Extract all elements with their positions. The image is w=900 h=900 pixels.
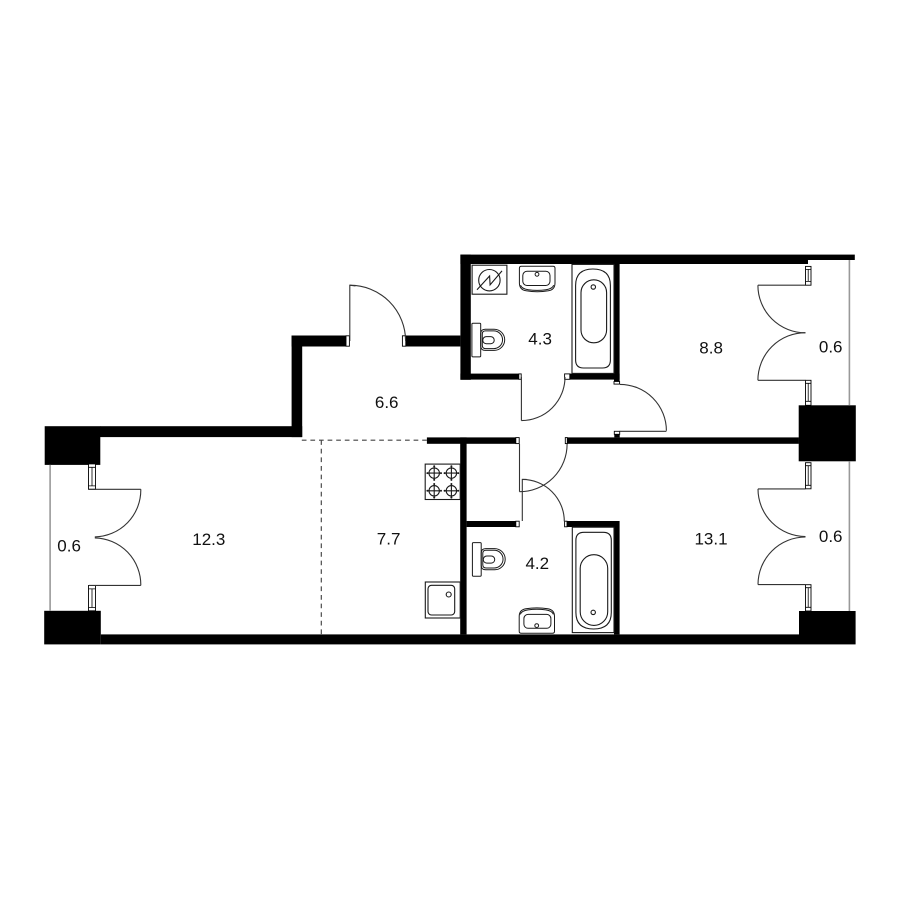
svg-text:0.6: 0.6 bbox=[819, 338, 843, 357]
svg-text:8.8: 8.8 bbox=[699, 339, 723, 358]
svg-text:13.1: 13.1 bbox=[694, 530, 727, 549]
svg-text:4.3: 4.3 bbox=[528, 329, 552, 348]
svg-text:12.3: 12.3 bbox=[192, 530, 225, 549]
svg-text:0.6: 0.6 bbox=[57, 536, 81, 555]
svg-text:7.7: 7.7 bbox=[377, 529, 401, 548]
svg-text:6.6: 6.6 bbox=[375, 393, 399, 412]
svg-text:4.2: 4.2 bbox=[525, 554, 549, 573]
svg-text:0.6: 0.6 bbox=[819, 527, 843, 546]
